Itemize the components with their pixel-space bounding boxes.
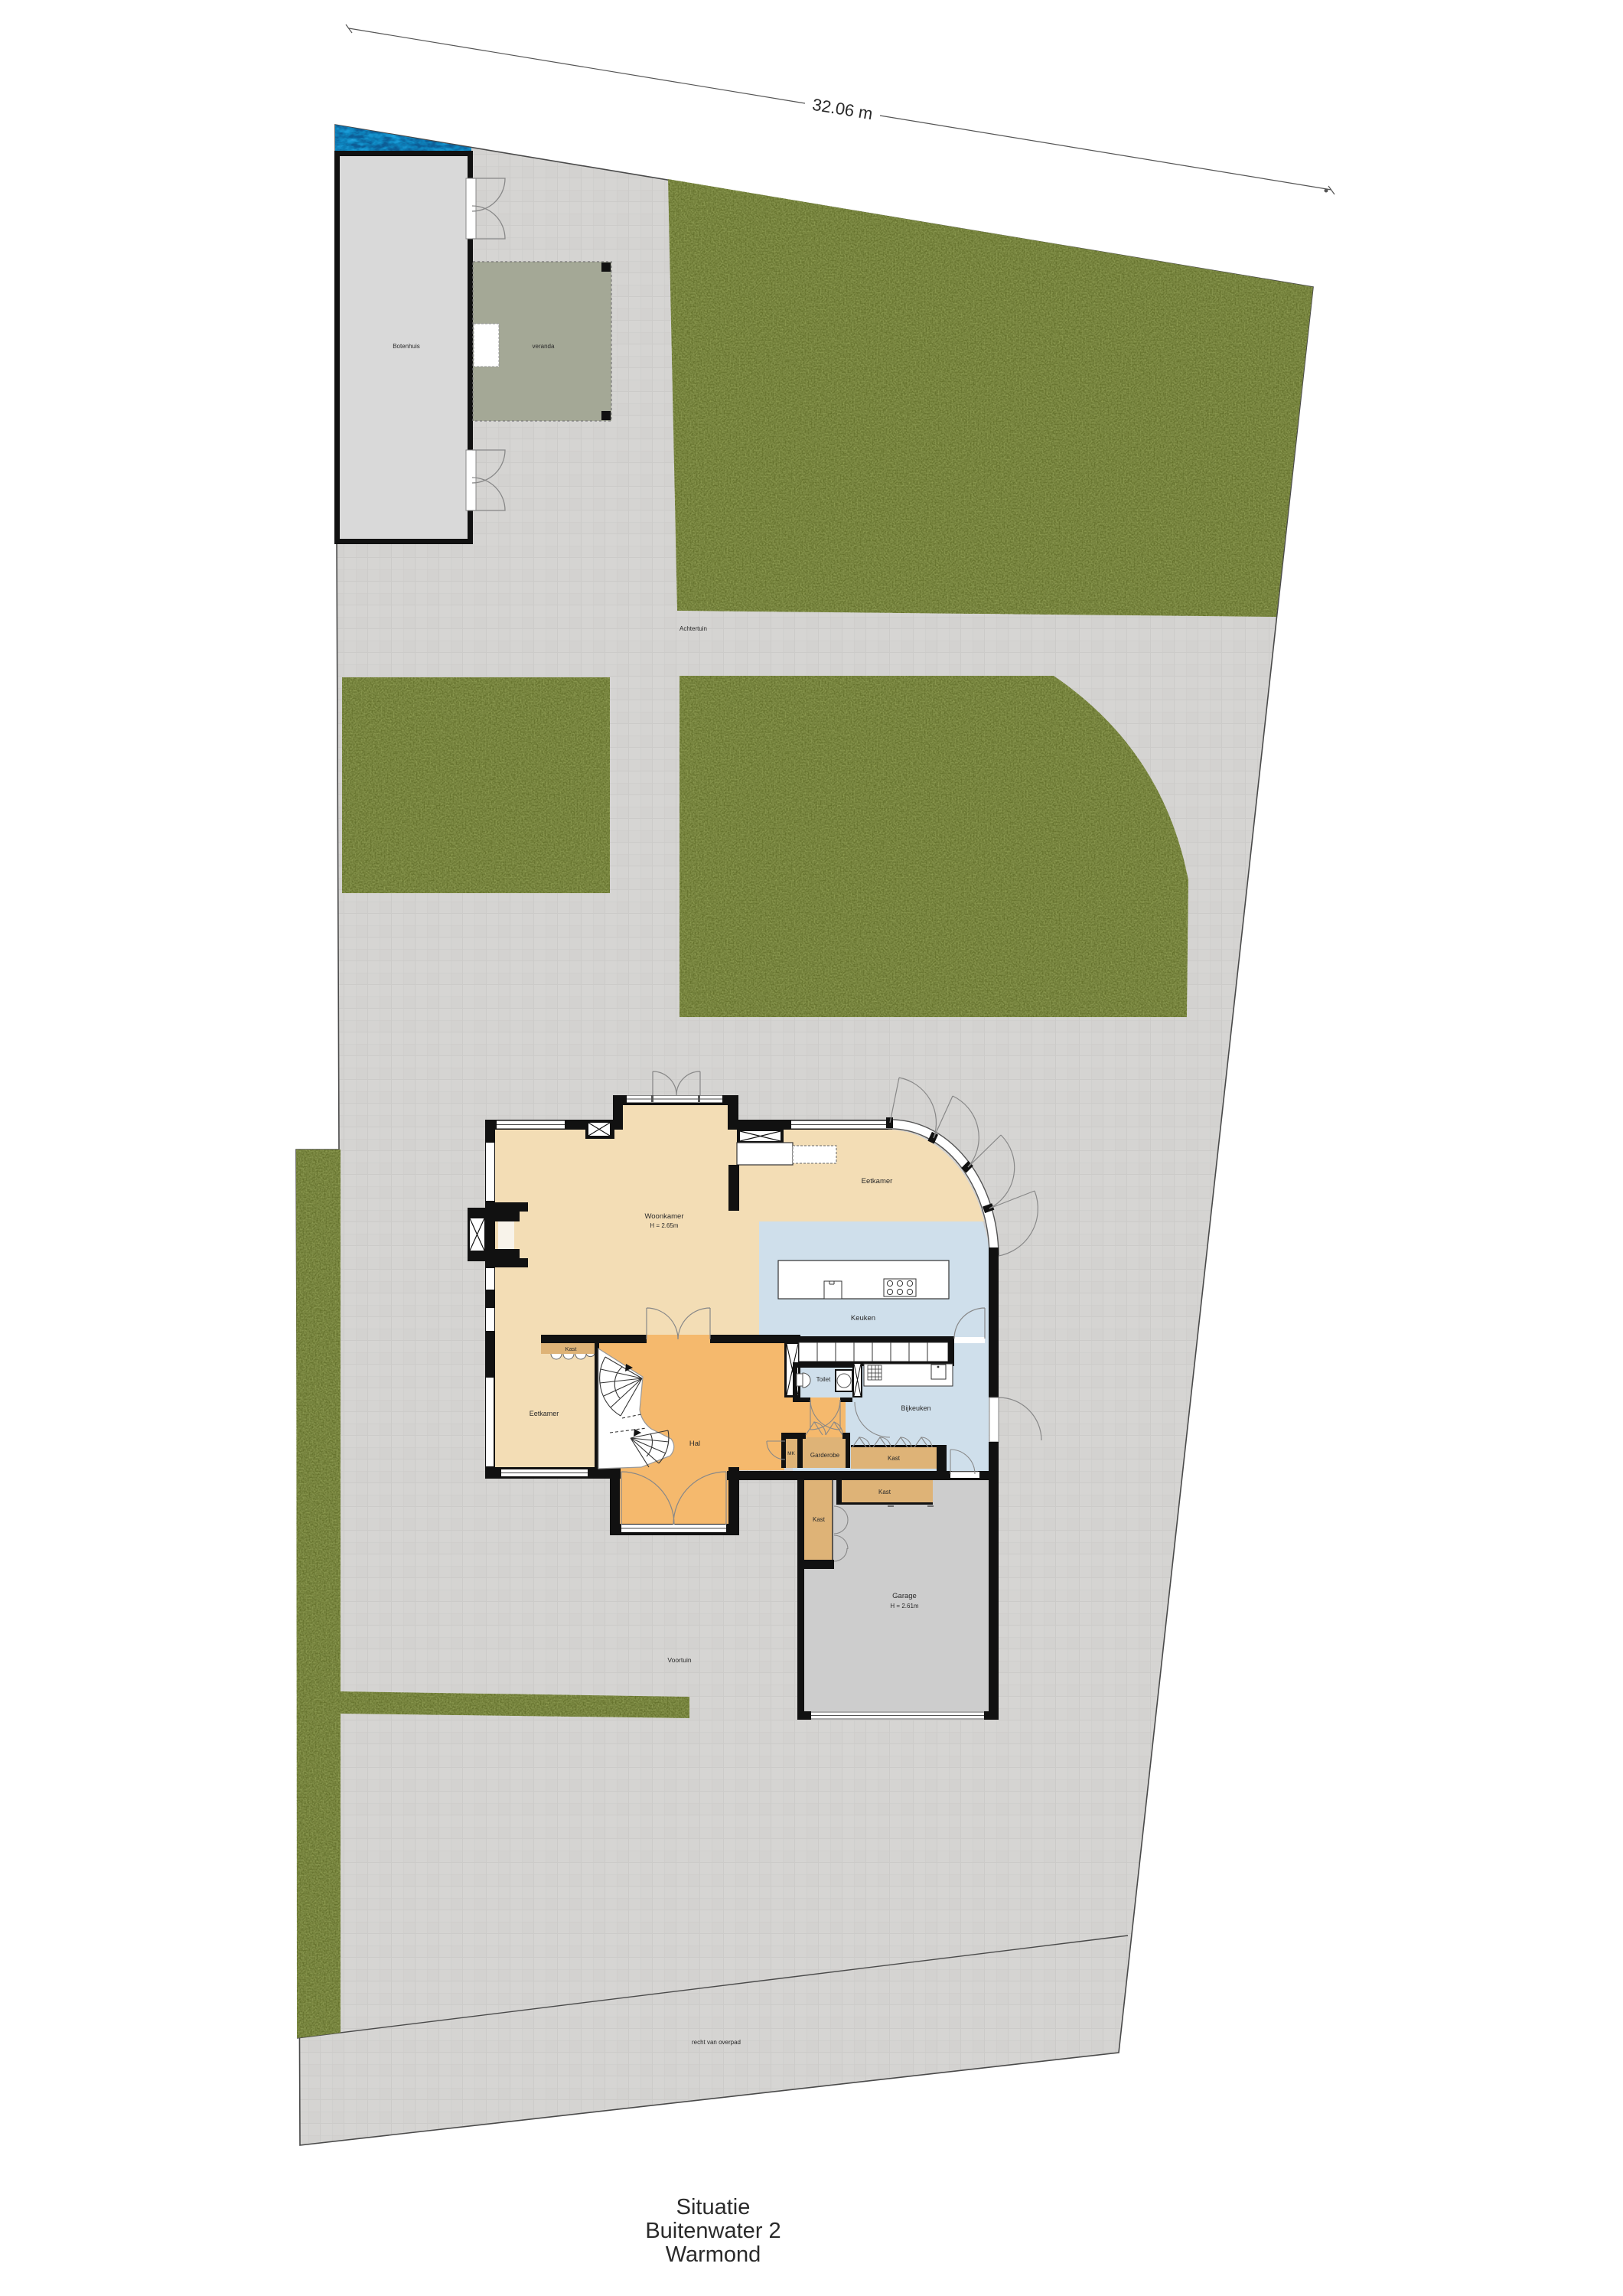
svg-text:H = 2.65m: H = 2.65m (650, 1222, 678, 1229)
svg-text:Kast: Kast (878, 1489, 891, 1495)
svg-text:MK: MK (787, 1451, 795, 1456)
svg-text:veranda: veranda (533, 343, 555, 350)
svg-text:Achtertuin: Achtertuin (680, 625, 707, 632)
svg-text:Garage: Garage (892, 1592, 917, 1600)
svg-text:Eetkamer: Eetkamer (530, 1410, 559, 1417)
svg-text:Bijkeuken: Bijkeuken (901, 1404, 930, 1412)
svg-text:Buitenwater 2: Buitenwater 2 (645, 2219, 781, 2243)
svg-text:Kast: Kast (888, 1455, 901, 1462)
svg-text:Botenhuis: Botenhuis (393, 343, 420, 350)
svg-text:Garderobe: Garderobe (810, 1452, 840, 1459)
svg-text:Voortuin: Voortuin (667, 1656, 691, 1664)
svg-text:Kast: Kast (813, 1516, 826, 1523)
svg-text:Hal: Hal (689, 1440, 700, 1448)
svg-text:Toilet: Toilet (816, 1376, 831, 1383)
svg-text:Kast: Kast (565, 1345, 577, 1352)
svg-text:recht van overpad: recht van overpad (692, 2039, 741, 2046)
svg-text:Keuken: Keuken (851, 1314, 875, 1322)
svg-text:Warmond: Warmond (666, 2242, 761, 2267)
svg-text:H = 2.61m: H = 2.61m (890, 1603, 918, 1609)
svg-text:Situatie: Situatie (676, 2195, 751, 2219)
svg-text:Eetkamer: Eetkamer (862, 1177, 893, 1186)
svg-text:Woonkamer: Woonkamer (644, 1212, 683, 1221)
